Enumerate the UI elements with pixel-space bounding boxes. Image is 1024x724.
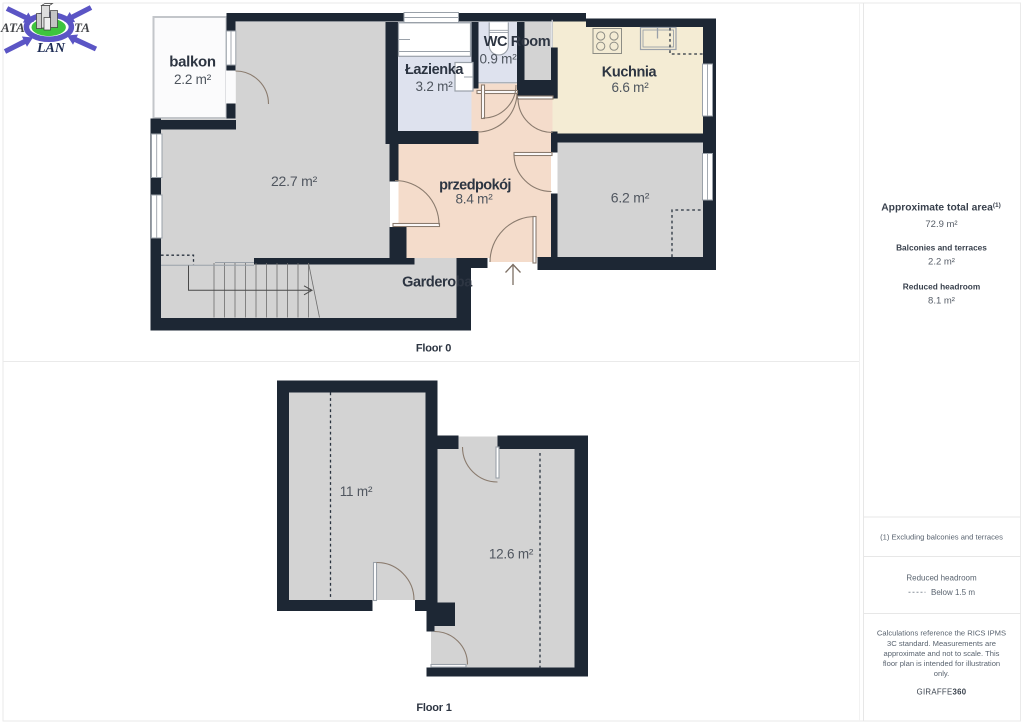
svg-text:72.9 m²: 72.9 m²	[925, 219, 957, 230]
svg-text:ATA: ATA	[0, 20, 25, 35]
svg-text:6.6 m²: 6.6 m²	[611, 80, 649, 95]
svg-text:11 m²: 11 m²	[340, 484, 373, 499]
svg-text:Reduced headroom: Reduced headroom	[906, 573, 977, 582]
svg-text:only.: only.	[934, 669, 949, 678]
svg-text:Reduced headroom: Reduced headroom	[903, 281, 980, 291]
svg-text:Calculations reference the RIC: Calculations reference the RICS IPMS	[877, 629, 1006, 638]
svg-text:0.9 m²: 0.9 m²	[479, 52, 517, 67]
svg-text:8.4 m²: 8.4 m²	[455, 192, 493, 207]
svg-text:Floor 1: Floor 1	[416, 702, 451, 714]
svg-text:22.7 m²: 22.7 m²	[271, 173, 318, 189]
svg-text:Approximate total area(1): Approximate total area(1)	[881, 202, 1001, 214]
svg-text:(1) Excluding balconies and te: (1) Excluding balconies and terraces	[880, 533, 1003, 542]
svg-text:3.2 m²: 3.2 m²	[415, 79, 453, 94]
svg-text:2.2 m²: 2.2 m²	[928, 257, 955, 268]
svg-text:TA: TA	[74, 20, 90, 35]
svg-text:approximate and not to scale.: approximate and not to scale. This	[884, 649, 1000, 658]
svg-text:2.2 m²: 2.2 m²	[174, 72, 212, 87]
svg-text:Kuchnia: Kuchnia	[602, 65, 658, 81]
svg-text:WC Room: WC Room	[484, 34, 550, 50]
svg-text:Balconies and terraces: Balconies and terraces	[896, 243, 987, 253]
svg-text:8.1 m²: 8.1 m²	[928, 295, 955, 306]
svg-text:Garderoba: Garderoba	[402, 275, 473, 291]
svg-text:floor plan is intended for ill: floor plan is intended for illustration	[883, 659, 1000, 668]
svg-text:GIRAFFE360: GIRAFFE360	[917, 688, 967, 697]
svg-text:LAN: LAN	[36, 41, 66, 56]
svg-text:Below 1.5 m: Below 1.5 m	[931, 588, 975, 597]
svg-text:Łazienka: Łazienka	[405, 62, 464, 78]
svg-text:12.6 m²: 12.6 m²	[489, 547, 534, 562]
svg-text:balkon: balkon	[169, 54, 216, 71]
svg-text:3C standard. Measurements are: 3C standard. Measurements are	[887, 639, 996, 648]
svg-text:Floor 0: Floor 0	[416, 343, 451, 355]
svg-text:6.2 m²: 6.2 m²	[611, 190, 650, 206]
